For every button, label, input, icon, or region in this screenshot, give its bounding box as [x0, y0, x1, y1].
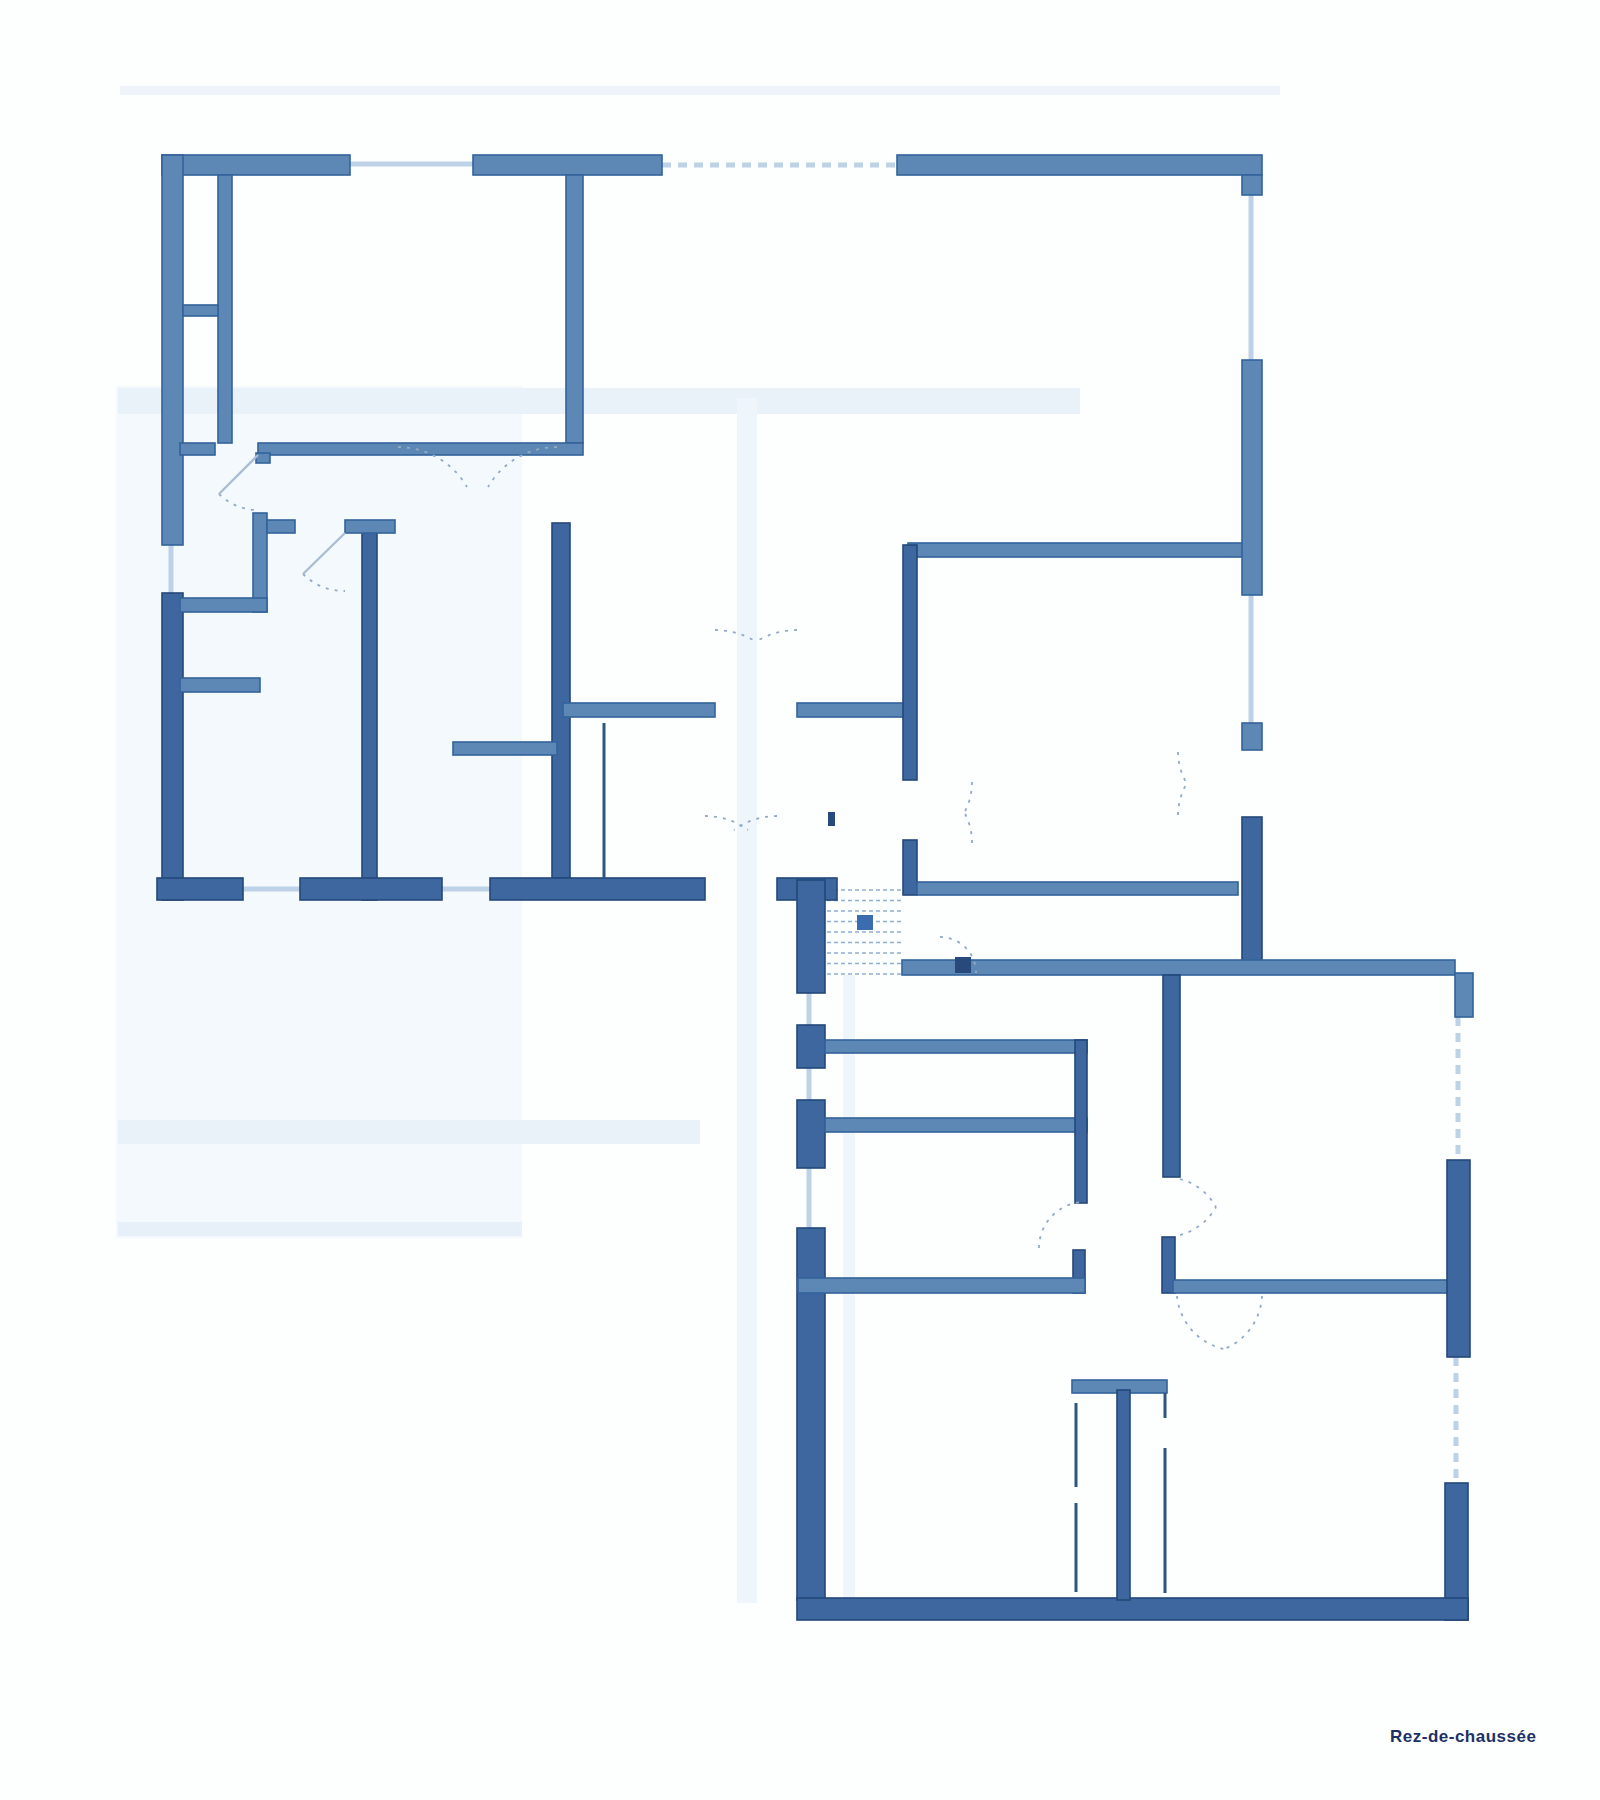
wall	[345, 520, 395, 533]
door-swing-arc	[757, 630, 797, 641]
wall	[1242, 723, 1262, 750]
wall	[1117, 1390, 1130, 1600]
door-swing-arc	[1178, 752, 1187, 784]
floor-plan-page: Rez-de-chaussée	[0, 0, 1600, 1800]
wall	[256, 453, 270, 463]
wall	[566, 175, 583, 443]
wall	[180, 678, 260, 692]
wall	[1455, 973, 1473, 1017]
floor-label: Rez-de-chaussée	[1390, 1727, 1536, 1746]
wall	[902, 960, 1455, 975]
wall	[1173, 1280, 1450, 1293]
scan-artifact	[737, 398, 757, 1603]
wall	[180, 598, 267, 612]
door-swing-arc	[964, 812, 972, 843]
walls-layer	[157, 155, 1473, 1620]
wall	[797, 1025, 825, 1068]
wall	[180, 443, 215, 455]
wall	[798, 1278, 1085, 1293]
wall	[218, 175, 232, 443]
wall	[162, 593, 183, 900]
scan-artifacts-layer	[116, 86, 1280, 1603]
wall	[1075, 1040, 1087, 1203]
scan-artifact	[120, 86, 1280, 95]
stair-marker	[857, 915, 873, 930]
wall	[1163, 975, 1180, 1177]
wall	[1242, 360, 1262, 595]
wall	[825, 1040, 1087, 1053]
door-swing-arc	[1180, 1207, 1216, 1235]
wall	[903, 840, 917, 895]
wall	[183, 305, 218, 316]
wall	[797, 1598, 1468, 1620]
staircase	[827, 890, 903, 974]
ink-mark	[955, 957, 971, 973]
door-swing-arc	[964, 782, 972, 813]
scan-artifact	[118, 388, 1080, 414]
wall	[267, 520, 295, 533]
door-swing-arc	[1178, 783, 1187, 815]
wall	[825, 1118, 1087, 1132]
wall	[1242, 817, 1262, 972]
door-swing-arc	[1224, 1296, 1262, 1349]
door-swing-arc	[1177, 1296, 1224, 1349]
wall	[797, 1100, 825, 1168]
wall	[300, 878, 442, 900]
wall	[797, 880, 825, 993]
wall	[1447, 1160, 1470, 1357]
wall	[563, 703, 715, 717]
wall	[253, 513, 267, 612]
floor-plan-drawing: Rez-de-chaussée	[0, 0, 1600, 1800]
wall	[897, 155, 1262, 175]
wall	[917, 882, 1238, 895]
scan-artifact	[118, 1120, 700, 1144]
wall	[157, 878, 243, 900]
wall	[908, 543, 1243, 557]
door-swing-arc	[1180, 1179, 1216, 1207]
wall	[258, 443, 583, 455]
wall	[1242, 175, 1262, 195]
wall	[162, 155, 183, 545]
ink-mark	[828, 812, 835, 826]
wall	[552, 523, 570, 878]
scan-artifact	[118, 1222, 522, 1236]
wall	[903, 545, 917, 780]
wall	[362, 523, 377, 900]
wall	[453, 742, 557, 755]
door-swing-arc	[1039, 1202, 1085, 1248]
wall	[162, 155, 350, 175]
wall	[490, 878, 705, 900]
wall	[797, 703, 908, 717]
wall	[473, 155, 662, 175]
